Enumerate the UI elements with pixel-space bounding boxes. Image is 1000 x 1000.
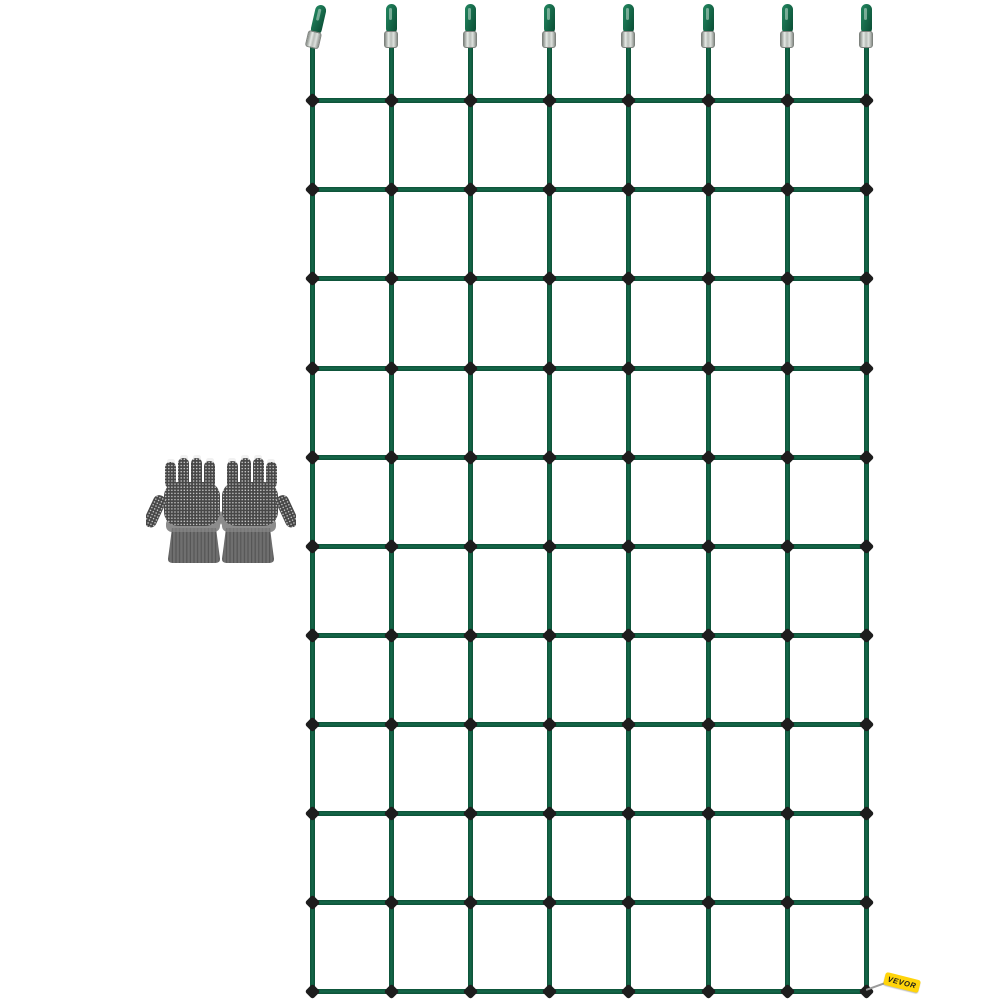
net-connector [304,805,320,821]
top-hanging-loop [700,4,716,48]
net-connector [462,805,478,821]
net-connector [779,894,795,910]
net-connector [620,360,636,376]
net-connector [700,92,716,108]
net-connector [620,270,636,286]
loop-rope [544,4,555,34]
net-connector [383,716,399,732]
net-connector [858,627,874,643]
net-connector [541,894,557,910]
net-connector [858,894,874,910]
net-connector [462,360,478,376]
net-connector [541,360,557,376]
net-connector [383,449,399,465]
net-connector [620,627,636,643]
top-hanging-loop [383,4,399,48]
net-connector [541,270,557,286]
net-connector [620,538,636,554]
net-connector [462,538,478,554]
net-connector [462,92,478,108]
net-connector [779,449,795,465]
net-connector [779,983,795,999]
net-connector [858,270,874,286]
net-connector [779,538,795,554]
net-connector [304,983,320,999]
net-connector [858,716,874,732]
net-connector [858,360,874,376]
top-hanging-loop [620,4,636,48]
net-connector [304,627,320,643]
net-connector [383,627,399,643]
metal-ferrule [621,31,635,48]
top-hanging-loop [304,3,329,49]
net-connector [620,716,636,732]
net-connector [541,983,557,999]
left-glove [146,455,222,563]
net-connector [541,449,557,465]
net-connector [383,894,399,910]
net-connector [779,716,795,732]
net-connector [541,627,557,643]
net-connector [858,449,874,465]
net-connector [462,181,478,197]
net-connector [700,360,716,376]
net-connector [779,92,795,108]
net-connector [700,449,716,465]
metal-ferrule [780,31,794,48]
net-connector [304,894,320,910]
net-connector [620,181,636,197]
net-connector [700,270,716,286]
net-connector [383,538,399,554]
net-connector [779,270,795,286]
top-hanging-loop [779,4,795,48]
net-connector [462,716,478,732]
top-hanging-loop [462,4,478,48]
net-connector [383,92,399,108]
net-connector [858,538,874,554]
net-connector [700,894,716,910]
net-connector [304,538,320,554]
net-connector [383,181,399,197]
net-connector [779,360,795,376]
metal-ferrule [384,31,398,48]
net-connector [620,894,636,910]
loop-rope [465,4,476,34]
top-hanging-loop [541,4,557,48]
metal-ferrule [701,31,715,48]
loop-rope [782,4,793,34]
net-connector [700,983,716,999]
loop-rope [386,4,397,34]
net-connector [620,983,636,999]
net-connector [858,983,874,999]
net-connector [462,894,478,910]
net-connector [541,181,557,197]
net-connector [383,983,399,999]
loop-rope [703,4,714,34]
top-hanging-loop [858,4,874,48]
net-connector [541,805,557,821]
net-connector [620,92,636,108]
net-connector [304,270,320,286]
loop-rope [861,4,872,34]
metal-ferrule [542,31,556,48]
net-connector [383,270,399,286]
net-connector [858,181,874,197]
net-connector [304,716,320,732]
net-connector [541,92,557,108]
loop-rope [623,4,634,34]
metal-ferrule [463,31,477,48]
net-connector [700,805,716,821]
net-connector [383,805,399,821]
net-connector [462,627,478,643]
net-connector [700,538,716,554]
net-connector [462,449,478,465]
gloves [146,452,296,564]
net-connector [858,92,874,108]
net-connector [858,805,874,821]
net-connector [304,92,320,108]
net-connector [779,181,795,197]
net-connector [541,538,557,554]
metal-ferrule [305,30,322,50]
net-connector [304,449,320,465]
net-connector [462,983,478,999]
metal-ferrule [859,31,873,48]
net-connector [620,805,636,821]
net-connector [304,181,320,197]
net-connector [304,360,320,376]
net-connector [541,716,557,732]
net-connector [620,449,636,465]
net-connector [462,270,478,286]
net-connector [700,627,716,643]
net-connector [779,627,795,643]
net-connector [700,181,716,197]
right-glove [220,455,296,563]
product-photo-canvas: VEVOR [0,0,1000,1000]
net-connector [383,360,399,376]
net-connector [779,805,795,821]
net-connector [700,716,716,732]
